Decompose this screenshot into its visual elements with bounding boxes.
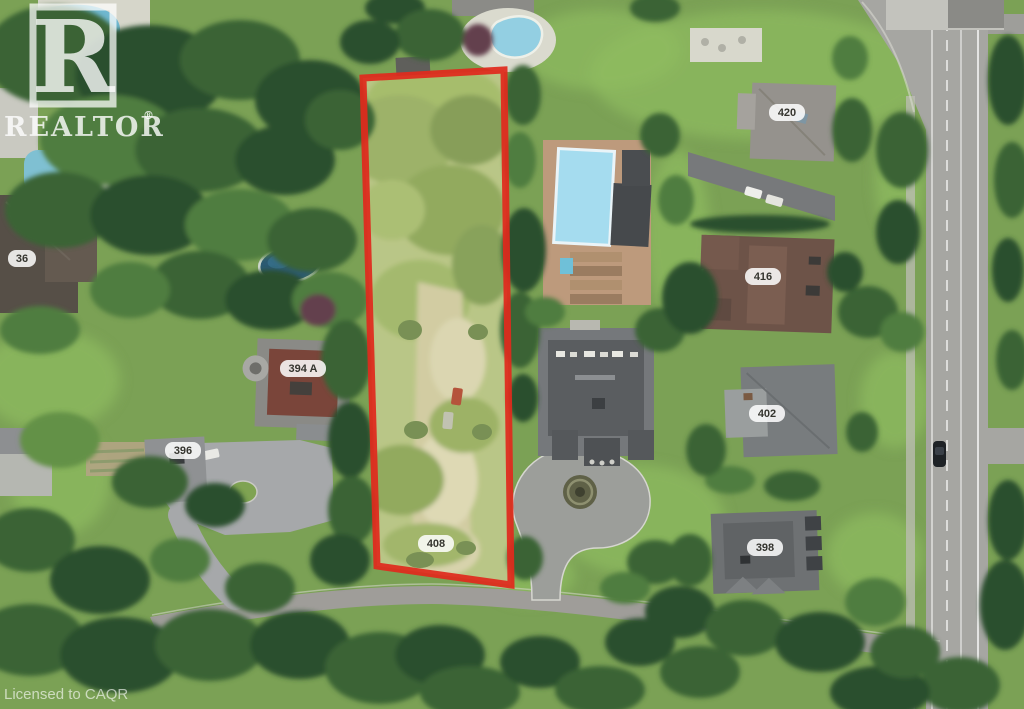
label-36-text: 36: [16, 253, 28, 265]
side-street: [988, 428, 1024, 464]
label-36: 36: [8, 250, 36, 267]
label-394a: 394 A: [280, 360, 326, 377]
label-408: 408: [418, 535, 454, 552]
label-396: 396: [165, 442, 201, 459]
pool-complex: [543, 140, 652, 305]
label-402-text: 402: [758, 408, 776, 420]
label-402: 402: [749, 405, 785, 422]
label-420-text: 420: [778, 107, 796, 119]
sidewalk: [906, 96, 915, 709]
license-watermark: Licensed to CAQR: [4, 686, 128, 703]
realtor-logo-letter: R: [31, 0, 115, 116]
label-408-text: 408: [427, 538, 445, 550]
label-416-text: 416: [754, 271, 772, 283]
registered-mark: ®: [143, 109, 154, 122]
realtor-wordmark: REALTOR: [4, 112, 165, 143]
mansion: [538, 320, 654, 466]
label-420: 420: [769, 104, 805, 121]
label-396-text: 396: [174, 445, 192, 457]
label-398-text: 398: [756, 542, 774, 554]
aerial-photo-canvas: 420 416 402 398 394 A 396 36 408: [0, 0, 1024, 709]
label-394a-text: 394 A: [289, 363, 318, 375]
label-398: 398: [747, 539, 783, 556]
pool-top: [490, 16, 542, 57]
label-416: 416: [745, 268, 781, 285]
aerial-photo: 420 416 402 398 394 A 396 36 408: [0, 0, 1024, 709]
patio-top-right: [690, 28, 762, 62]
house-420: [736, 82, 837, 161]
